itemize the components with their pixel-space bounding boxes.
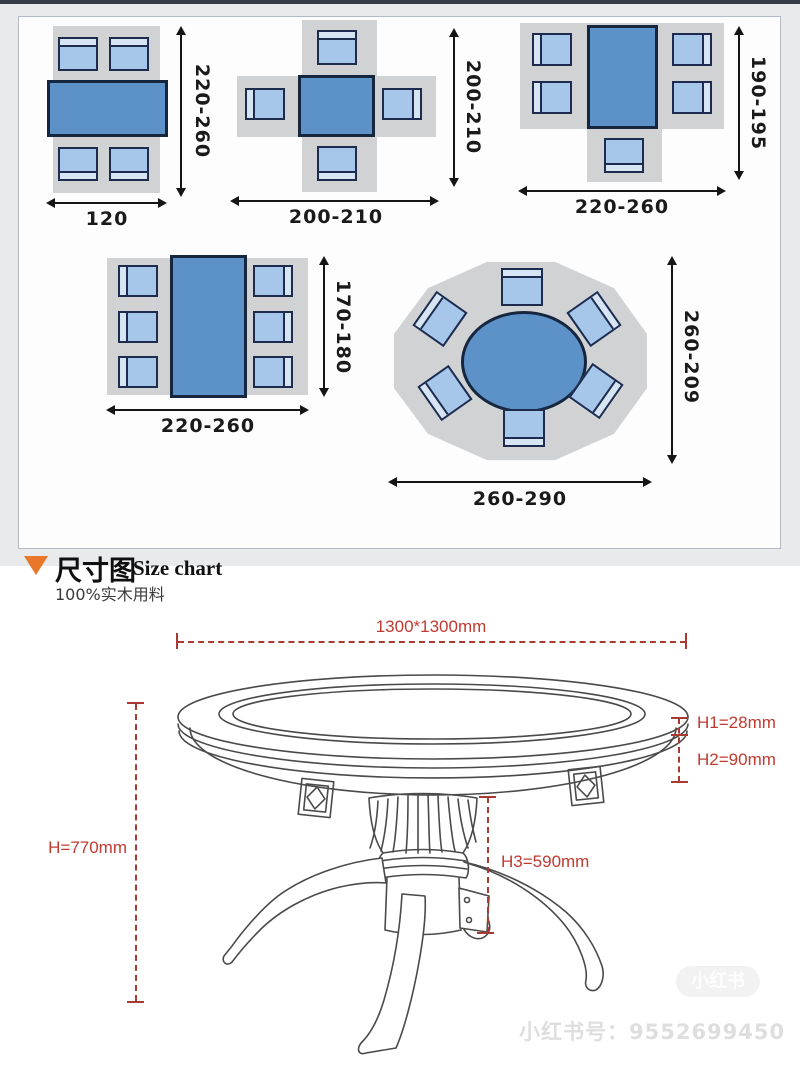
table-top-view [47, 80, 168, 137]
chair [253, 311, 293, 343]
chair [58, 147, 98, 181]
chair [118, 311, 158, 343]
height-arrow [671, 258, 673, 462]
tabletop-outer-edge [178, 675, 688, 759]
width-label: 200-210 [289, 206, 383, 228]
tabletop-rim2 [179, 731, 687, 778]
width-arrow [232, 200, 437, 202]
chair [118, 265, 158, 297]
width-arrow [390, 481, 650, 483]
width-arrow [48, 202, 165, 204]
tabletop-inner-ring [219, 684, 645, 744]
dim-tick [477, 932, 494, 934]
chair [245, 88, 285, 120]
height-arrow [180, 28, 182, 195]
table-top-view [587, 25, 658, 129]
table-leg-left [223, 858, 386, 964]
height-label: 170-180 [332, 280, 354, 374]
chair [532, 81, 572, 114]
apron-ornament-right [568, 766, 604, 805]
dim-label-h2: H2=90mm [697, 750, 776, 770]
chair [672, 33, 712, 66]
chair [109, 147, 149, 181]
chair [501, 268, 543, 306]
dim-line-diameter [178, 641, 686, 643]
width-label: 260-290 [473, 488, 567, 510]
leg-bracket [459, 888, 489, 932]
chair [382, 88, 422, 120]
chair [253, 265, 293, 297]
chair [503, 409, 545, 447]
height-label: 260-209 [680, 310, 702, 404]
table-top-view [298, 75, 375, 137]
xiaohongshu-logo-watermark: 小红书 [676, 966, 760, 997]
width-label: 220-260 [161, 415, 255, 437]
chair [604, 138, 644, 173]
chair [109, 37, 149, 71]
chair [317, 30, 357, 65]
dim-line-h1-h2 [678, 718, 680, 782]
watermark-id-text: 小红书号：9552699450 [519, 1016, 785, 1046]
tabletop-inner-ring2 [233, 689, 631, 739]
chair [118, 356, 158, 388]
height-arrow [453, 30, 455, 185]
width-label: 220-260 [575, 196, 669, 218]
height-arrow [323, 258, 325, 395]
orange-triangle-icon [24, 556, 48, 575]
dim-label-h1: H1=28mm [697, 713, 776, 733]
apron-bottom [190, 728, 676, 795]
width-arrow [520, 190, 724, 192]
height-arrow [738, 28, 740, 178]
dim-label-h3: H3=590mm [501, 852, 589, 872]
product-size-chart-image: 220-260 120 200-210 200-210 190-195 220-… [0, 0, 800, 1067]
chair [532, 33, 572, 66]
dim-line-total-height [135, 704, 137, 1001]
section-title-en: Size chart [133, 556, 222, 581]
table-top-view [170, 255, 247, 398]
chair [253, 356, 293, 388]
height-label: 190-195 [747, 56, 769, 150]
chair [58, 37, 98, 71]
width-label: 120 [86, 208, 129, 230]
dim-label-diameter: 1300*1300mm [376, 617, 487, 637]
width-arrow [108, 409, 307, 411]
dim-tick [127, 1001, 144, 1003]
chair [317, 146, 357, 181]
dim-label-total-height: H=770mm [48, 838, 127, 858]
table-leg-front [359, 894, 426, 1054]
dim-line-h3 [487, 797, 489, 933]
chair [672, 81, 712, 114]
height-label: 220-260 [191, 64, 213, 158]
height-label: 200-210 [462, 60, 484, 154]
